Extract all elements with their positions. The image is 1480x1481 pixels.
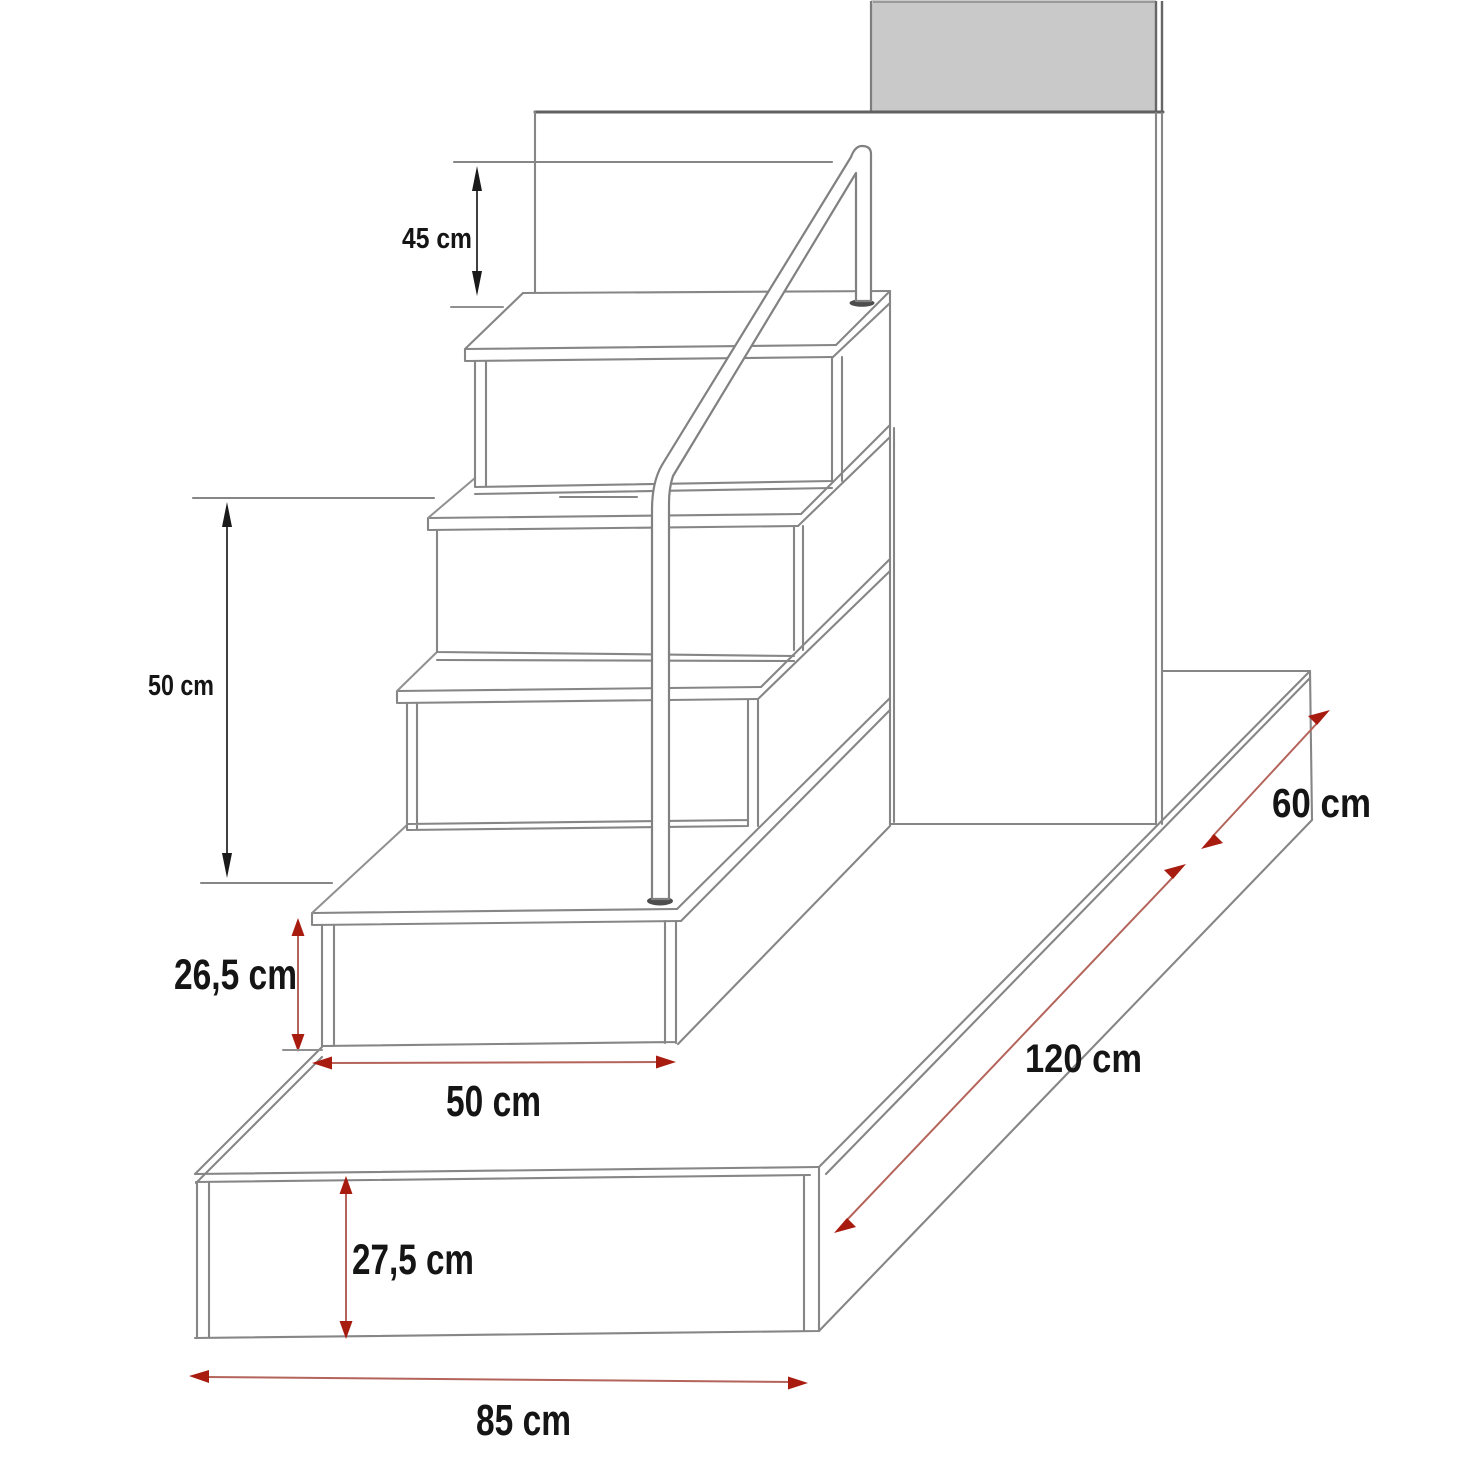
svg-text:60 cm: 60 cm (1272, 780, 1371, 826)
svg-text:50 cm: 50 cm (446, 1077, 541, 1126)
svg-text:120 cm: 120 cm (1025, 1037, 1142, 1081)
svg-text:27,5 cm: 27,5 cm (352, 1236, 474, 1284)
svg-text:26,5 cm: 26,5 cm (174, 951, 297, 999)
svg-text:50 cm: 50 cm (148, 670, 214, 702)
svg-text:85 cm: 85 cm (476, 1396, 571, 1445)
svg-text:45 cm: 45 cm (402, 223, 472, 255)
